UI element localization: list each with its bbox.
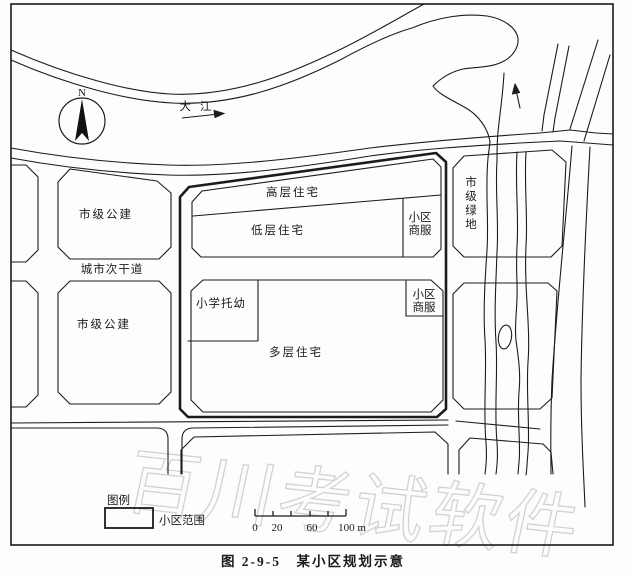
river-north-bank [11, 4, 424, 94]
stream-west-east-bank [495, 73, 504, 474]
legend-boundary-label: 小区范围 [159, 513, 205, 527]
flow-arrow-head [513, 84, 520, 94]
compass-north-label: N [78, 87, 86, 99]
label-city-green-char4: 地 [465, 218, 477, 231]
river-arrow-shaft [182, 114, 219, 118]
label-city-green: 市 级 绿 地 [465, 175, 477, 231]
label-school-kindergarten: 小学托幼 [196, 296, 246, 310]
channel-west-bank [542, 44, 558, 131]
block-city-green-lower [453, 283, 557, 409]
stream-east-west-bank [515, 152, 519, 474]
label-commercial-upper-line2: 商服 [409, 223, 432, 237]
river-arrow-head [214, 111, 224, 118]
riverside-road-north-edge [11, 130, 613, 165]
block-left-strip-lower [11, 281, 38, 407]
plan-map: 百川考试软件 [0, 0, 632, 577]
scale-label-20: 20 [272, 522, 284, 534]
diagonal-road-east-edge [584, 55, 610, 141]
block-city-green-upper [453, 150, 566, 257]
block-left-strip-upper [11, 165, 38, 262]
label-midrise: 多层住宅 [269, 345, 323, 359]
bottom-road-north-edge [11, 420, 448, 423]
label-lowrise: 低层住宅 [251, 223, 305, 237]
scale-label-100m: 100 m [338, 522, 366, 534]
label-city-green-char2: 级 [465, 190, 477, 203]
label-city-public-lower: 市级公建 [77, 317, 131, 331]
label-commercial-lower-line1: 小区 [413, 288, 436, 301]
label-city-public-upper: 市级公建 [79, 207, 133, 221]
label-commercial-lower-line2: 商服 [413, 300, 436, 314]
pond-island [497, 324, 513, 350]
school-box [188, 280, 258, 341]
label-highrise: 高层住宅 [266, 185, 320, 199]
block-south-right-partial [459, 438, 553, 474]
label-city-green-char1: 市 [465, 175, 477, 189]
figure-caption: 图 2-9-5 某小区规划示意 [221, 553, 405, 569]
compass-needle-icon [75, 99, 89, 141]
diagonal-road-west-edge [570, 40, 598, 129]
legend-title: 图例 [107, 493, 130, 507]
label-secondary-trunk-road: 城市次干道 [81, 262, 144, 276]
bottom-road-right-segment [456, 421, 540, 429]
label-commercial-upper-line1: 小区 [409, 211, 432, 224]
label-city-green-char3: 绿 [465, 203, 477, 217]
block-city-public-lower [58, 281, 171, 404]
compass: N [59, 87, 105, 144]
right-road-west-edge [551, 146, 572, 474]
scale-label-0: 0 [252, 522, 258, 534]
river-south-bank-and-west-stream [11, 15, 518, 474]
stream-east-east-bank [525, 152, 528, 475]
scale-label-60: 60 [307, 522, 319, 534]
right-road-east-edge [581, 147, 590, 507]
figure-page: 百川考试软件 [0, 0, 632, 577]
